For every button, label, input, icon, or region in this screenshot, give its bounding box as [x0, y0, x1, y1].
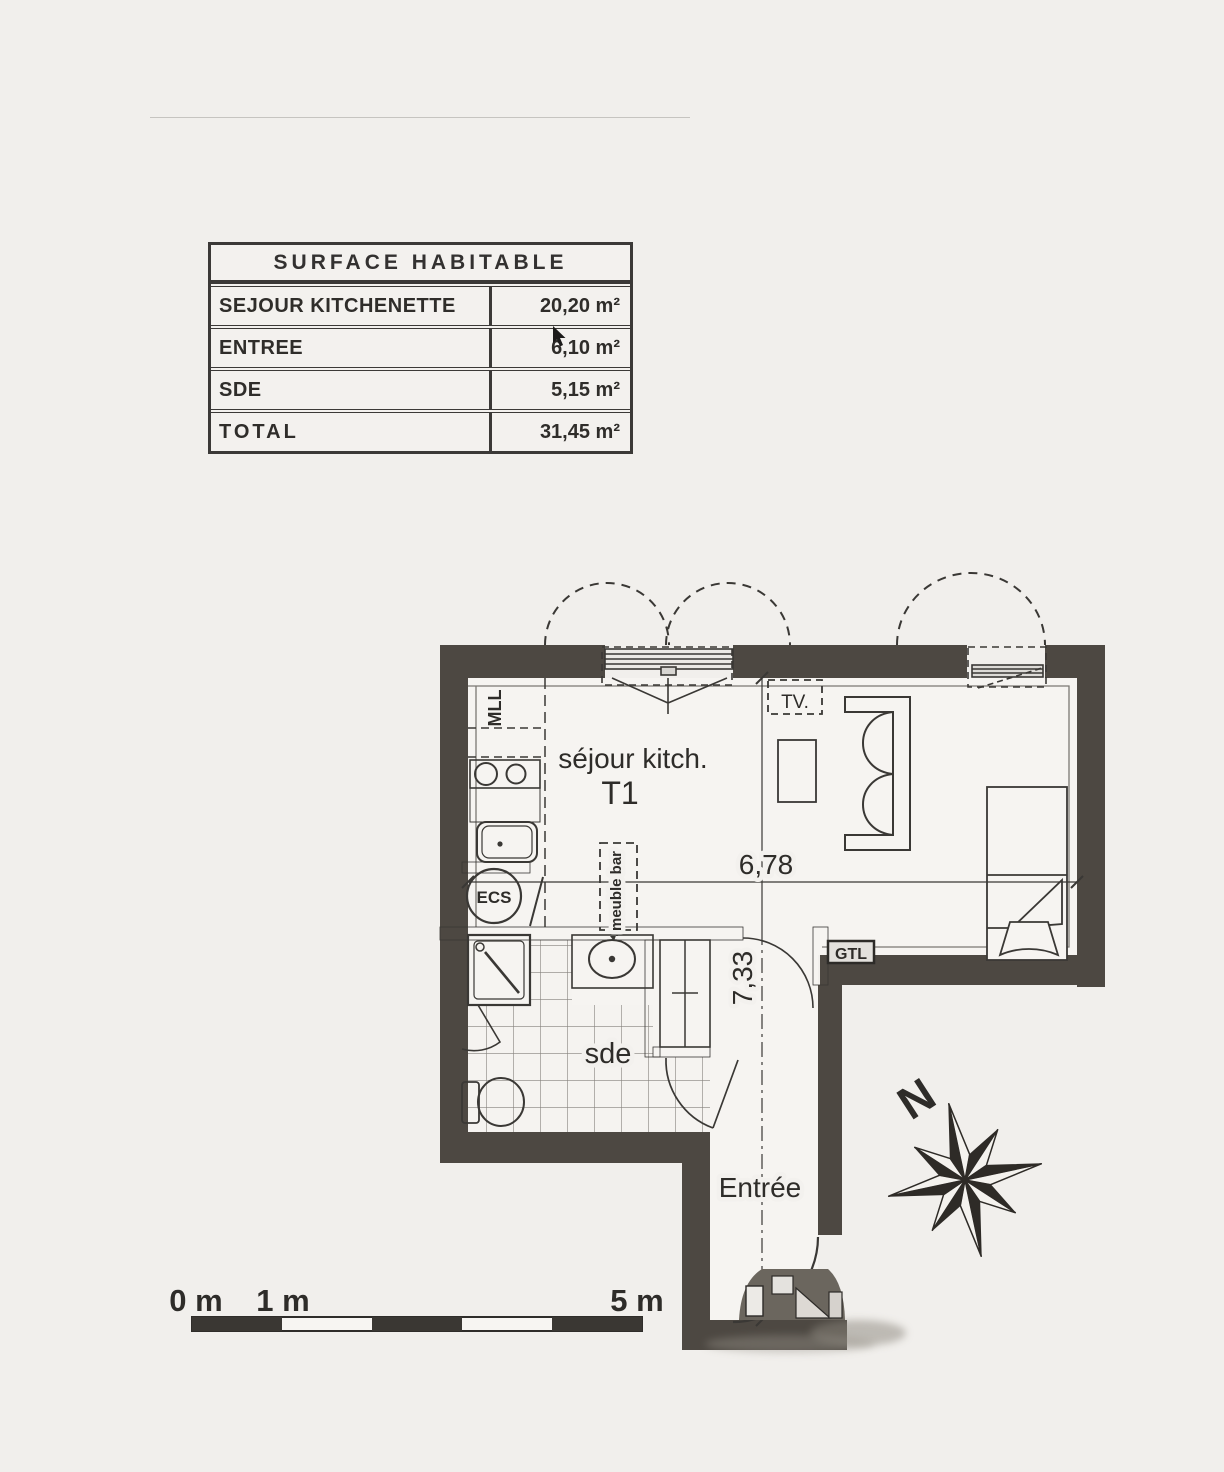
sejour-label: séjour kitch.: [558, 743, 707, 774]
entree-label: Entrée: [719, 1172, 802, 1203]
bed: [987, 787, 1067, 960]
gtl-label: GTL: [835, 946, 867, 963]
scanned-floor-plan-page: SURFACE HABITABLE SEJOUR KITCHENETTE 20,…: [0, 0, 1224, 1472]
scale-0m-label: 0 m: [169, 1283, 222, 1318]
sde-label: sde: [585, 1038, 632, 1070]
meuble-bar-label: meuble bar: [608, 851, 625, 931]
scale-1m-label: 1 m: [256, 1283, 309, 1318]
width-dimension: 6,78: [739, 849, 794, 880]
tv-label: TV.: [781, 692, 809, 713]
scale-bar: [192, 1317, 642, 1331]
ecs-label: ECS: [477, 888, 512, 907]
floor-plan-drawing: MLL ECS meuble bar séjour kitch. T1 TV. …: [0, 0, 1224, 1472]
north-label: N: [888, 1068, 944, 1130]
height-dimension: 7,33: [727, 951, 758, 1006]
type-label: T1: [601, 775, 638, 811]
mll-label: MLL: [485, 690, 505, 727]
scale-5m-label: 5 m: [610, 1283, 663, 1318]
compass-rose: [872, 1087, 1057, 1272]
window-swing-arcs: [545, 573, 1045, 645]
